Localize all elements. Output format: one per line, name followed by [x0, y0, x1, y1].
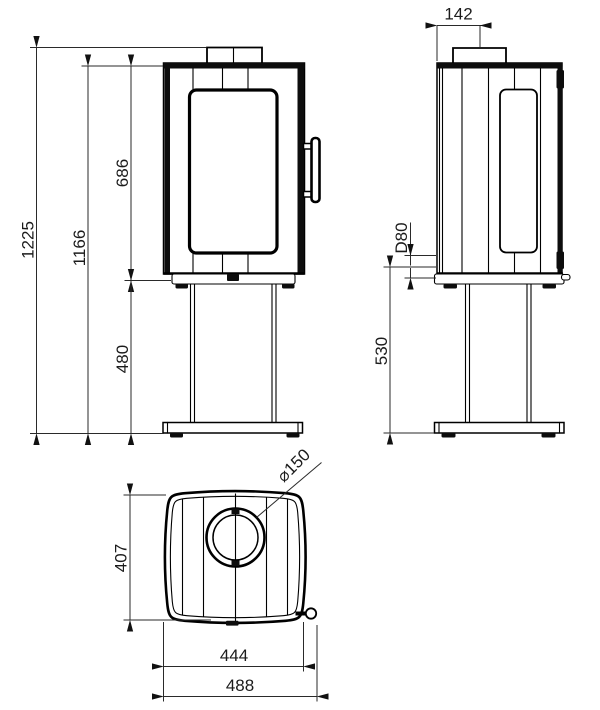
dim-label-pedestal-height: 480	[113, 345, 132, 373]
dim-label-total-height: 1225	[19, 221, 38, 259]
stove-dimension-drawing: 1225 1166 686 480	[0, 0, 600, 710]
door-glass-front	[190, 90, 278, 253]
pedestal-side	[435, 285, 565, 438]
hinge-top	[557, 70, 565, 89]
side-glass	[500, 90, 537, 253]
dim-label-body-width: 444	[220, 646, 248, 665]
bottom-plate-side	[435, 274, 571, 289]
door-handle-front	[304, 138, 320, 202]
dim-label-body-top-height: 1166	[70, 230, 89, 267]
dim-label-flue-offset: 142	[444, 5, 472, 24]
side-view	[435, 48, 571, 438]
dim-label-firebox-height: 686	[113, 159, 132, 187]
dim-label-overall-width: 488	[226, 676, 254, 695]
stove-body-front	[164, 63, 320, 289]
dim-label-intake-diameter: D80	[392, 222, 411, 253]
dim-label-intake-height: 530	[372, 337, 391, 365]
drawing-canvas: 1225 1166 686 480	[0, 0, 600, 710]
flue-collar-front	[207, 48, 262, 64]
flue-collar-side	[453, 48, 506, 63]
top-view	[165, 491, 316, 625]
stove-body-side	[435, 63, 571, 289]
latch-top	[226, 621, 239, 626]
hinge-bottom	[557, 252, 565, 270]
pedestal-front	[163, 285, 303, 438]
front-view	[163, 48, 320, 438]
dim-label-depth: 407	[112, 544, 131, 572]
dim-label-flue-diameter: ⌀150	[273, 445, 314, 486]
ash-lip	[562, 275, 571, 281]
